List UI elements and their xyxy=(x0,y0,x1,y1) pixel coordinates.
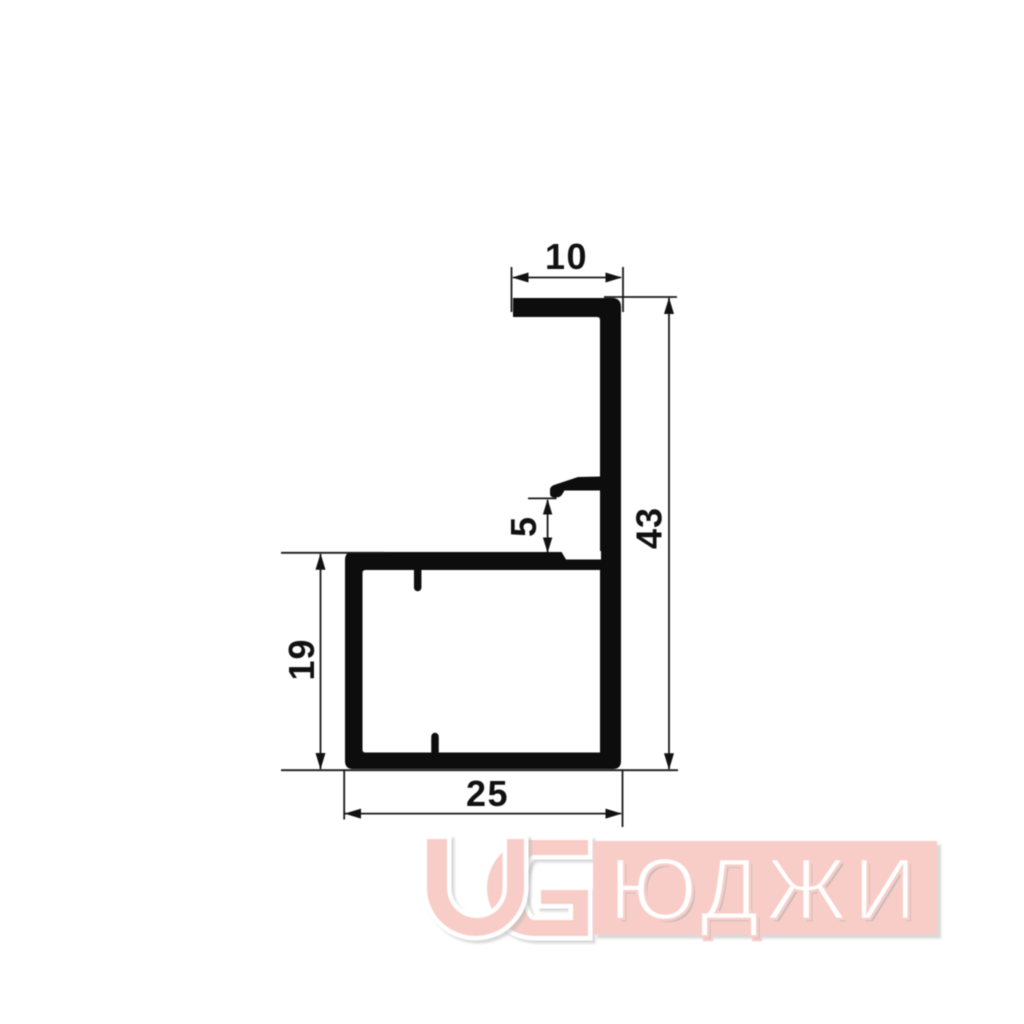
svg-text:25: 25 xyxy=(466,773,509,814)
svg-text:43: 43 xyxy=(629,507,670,549)
svg-text:19: 19 xyxy=(281,638,322,680)
svg-text:10: 10 xyxy=(545,236,588,277)
svg-text:ЮДЖИ: ЮДЖИ xyxy=(609,841,923,938)
svg-text:5: 5 xyxy=(503,517,544,537)
